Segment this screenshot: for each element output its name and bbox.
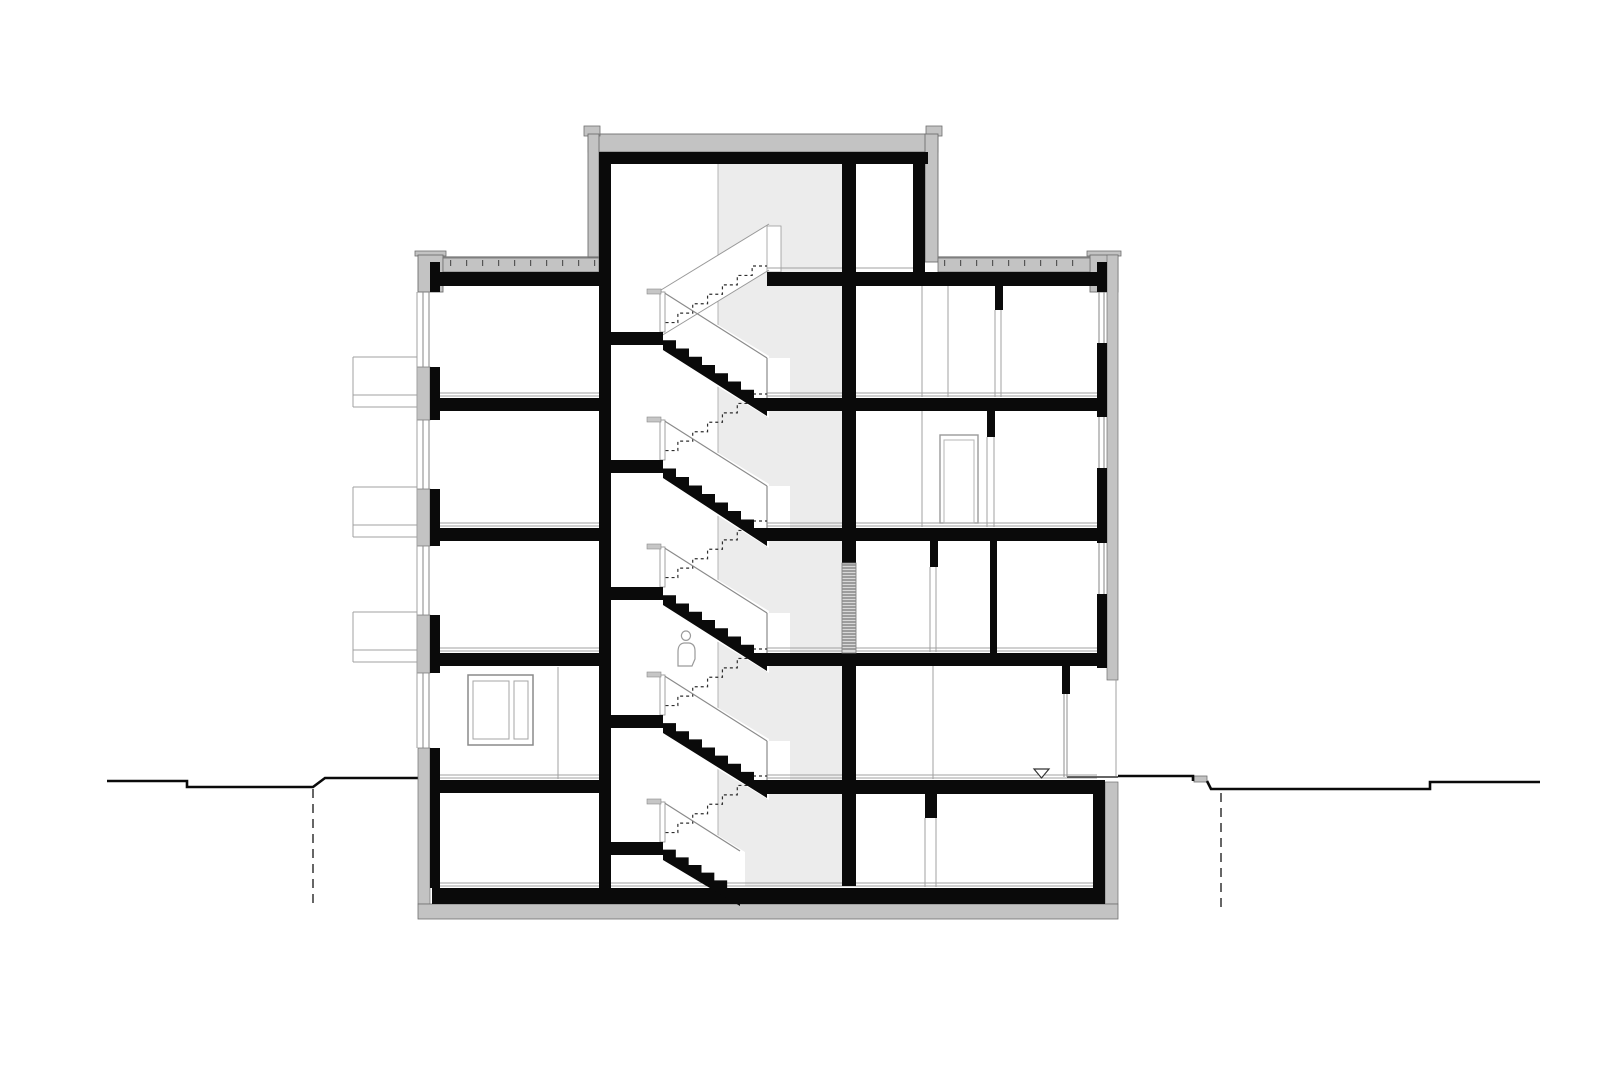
shaft-grille bbox=[842, 563, 856, 653]
ground-floor-window bbox=[468, 675, 533, 745]
building-section-svg bbox=[0, 0, 1621, 1080]
interior-door bbox=[940, 435, 978, 523]
facade-glazing-right bbox=[1099, 292, 1104, 594]
level-marker-icon bbox=[1034, 769, 1049, 778]
human-figure-icon bbox=[678, 631, 695, 666]
balconies bbox=[353, 357, 417, 662]
ground-floor-glass-front bbox=[1064, 680, 1116, 777]
architectural-section-page: Residential building cross-section drawi… bbox=[0, 0, 1621, 1080]
